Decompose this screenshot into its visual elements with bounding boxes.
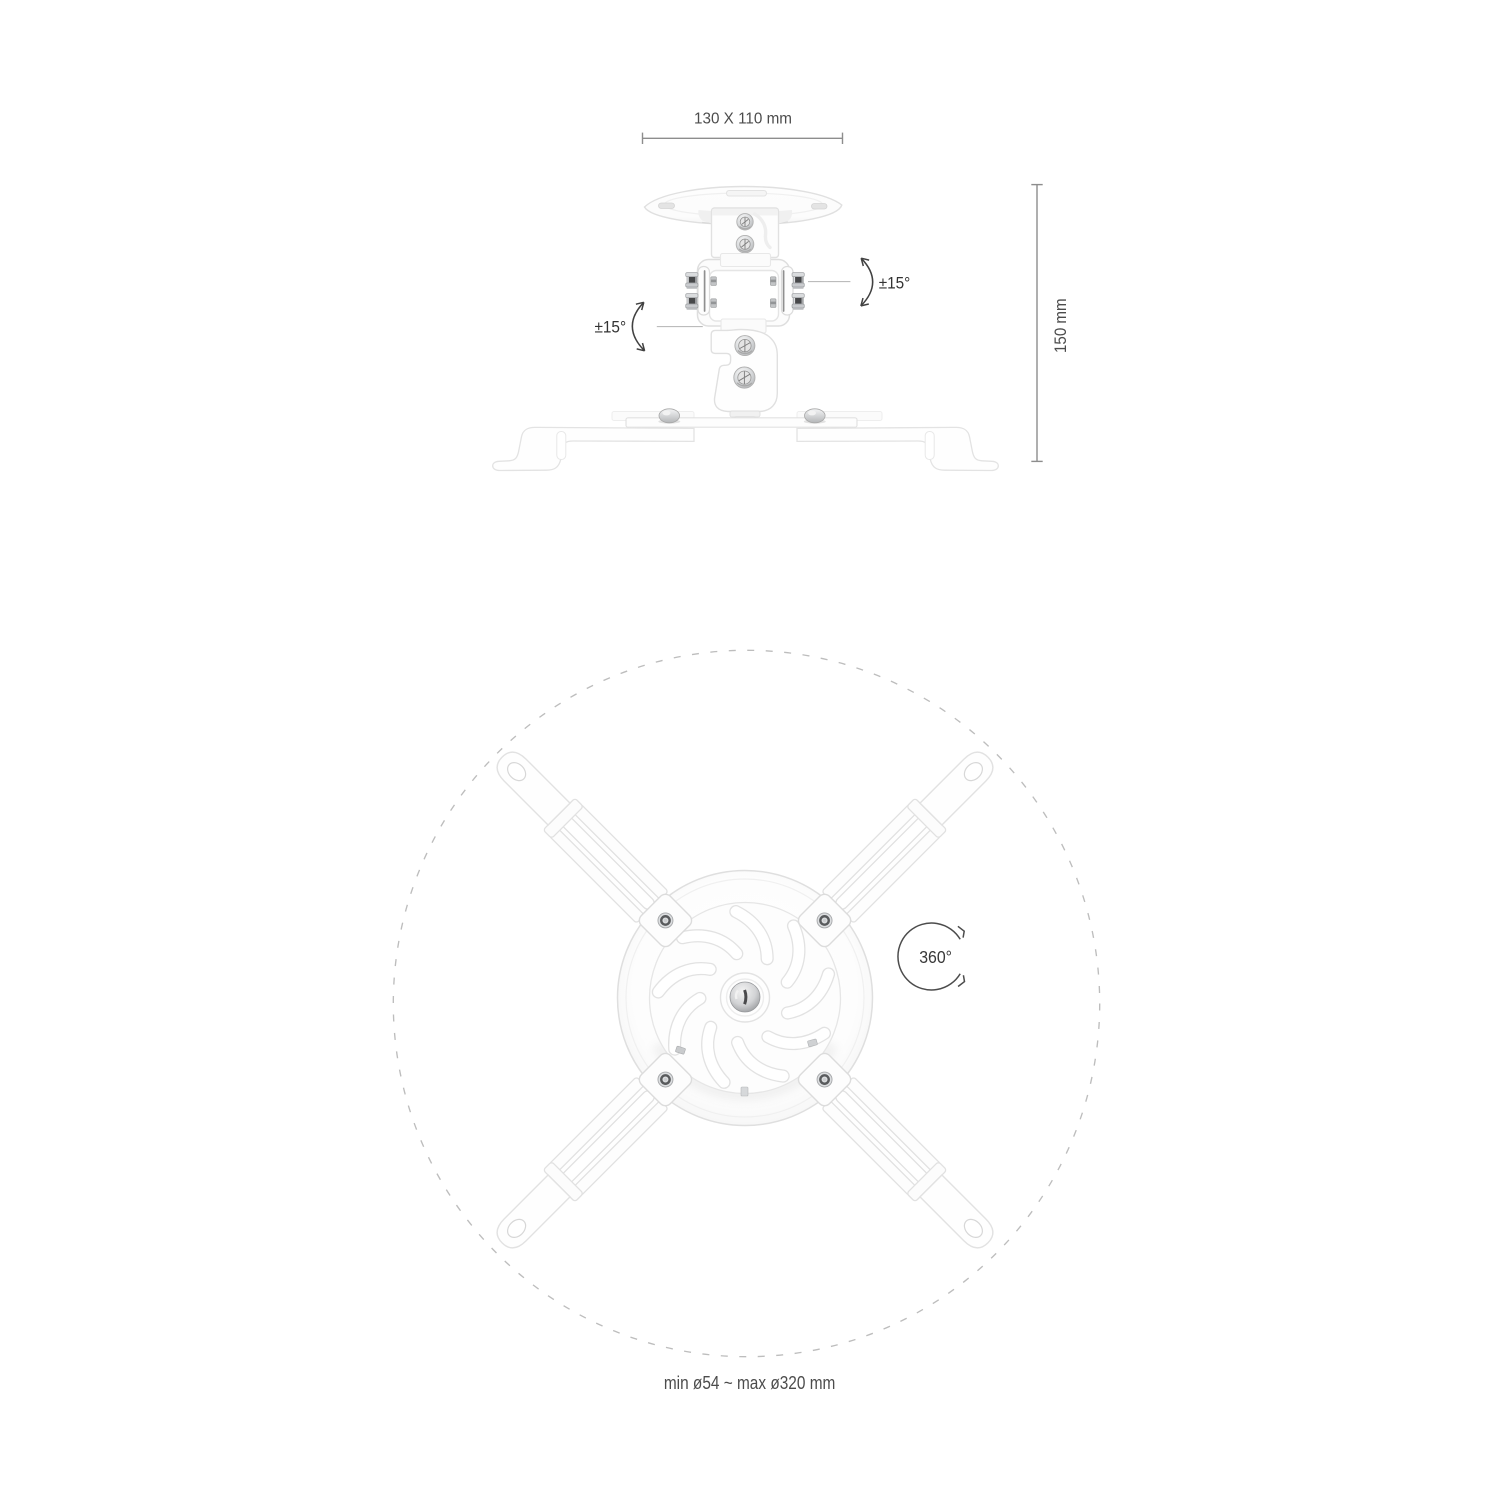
svg-text:min ø54 ~ max ø320 mm: min ø54 ~ max ø320 mm xyxy=(664,1372,836,1393)
svg-text:150 mm: 150 mm xyxy=(1051,298,1070,353)
svg-text:±15°: ±15° xyxy=(879,274,911,292)
svg-text:360°: 360° xyxy=(919,947,952,967)
svg-text:130 X 110 mm: 130 X 110 mm xyxy=(694,111,792,128)
svg-text:±15°: ±15° xyxy=(594,319,626,337)
